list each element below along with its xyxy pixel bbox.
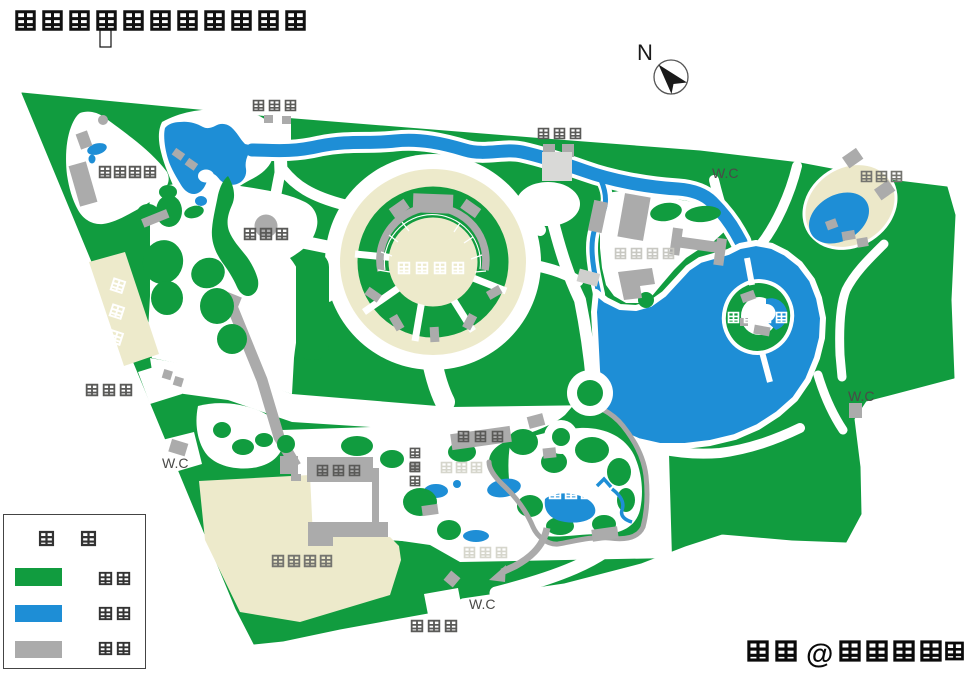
svg-text:W.C: W.C [162, 455, 188, 471]
svg-text:@: @ [806, 638, 833, 669]
svg-text:N: N [637, 40, 653, 65]
svg-text:W.C: W.C [848, 388, 874, 404]
svg-text:W.C: W.C [712, 165, 738, 181]
svg-text:W.C: W.C [469, 596, 495, 612]
